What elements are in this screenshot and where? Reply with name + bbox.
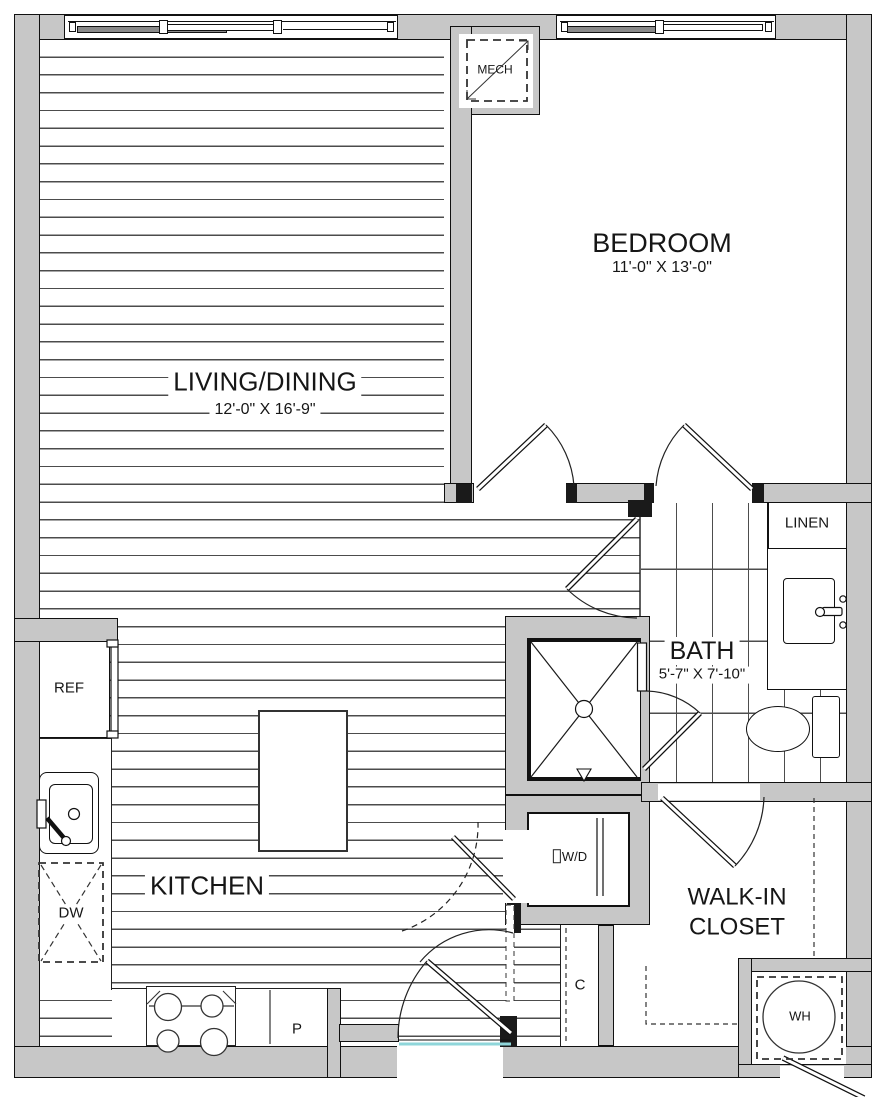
living-room-label: LIVING/DINING (168, 367, 361, 396)
mech-label: MECH (472, 63, 517, 76)
window-mullion (273, 20, 282, 34)
wall-exterior-right (846, 14, 872, 1078)
door-threshold (470, 483, 568, 503)
window-frame-line (283, 29, 393, 30)
bath-dims: 5'-7" X 7'-10" (654, 667, 750, 684)
bath-sink (783, 578, 835, 644)
floorplan-canvas: LIVING/DINING 12'-0" X 16'-9" BEDROOM 11… (0, 0, 884, 1097)
bedroom-window (556, 15, 776, 39)
walkin-door-opening (658, 784, 760, 800)
walkin-closet-door (662, 798, 735, 866)
wh-closet-wall-top (738, 958, 872, 972)
wh-closet-wall-left (738, 958, 752, 1068)
shower-pan (527, 638, 641, 781)
window-end-block (69, 22, 76, 32)
ref-alcove-wall (14, 618, 118, 642)
wall-bedroom-south-c (752, 483, 872, 503)
window-end-block (387, 22, 394, 32)
window-sash-light (166, 24, 277, 31)
kitchen-label: KITCHEN (145, 871, 269, 900)
entry-wall-spur-h (339, 1024, 399, 1042)
wall-exterior-left (14, 14, 40, 1078)
kitchen-island (258, 710, 348, 852)
bedroom-dims: 11'-0" X 13'-0" (607, 259, 717, 277)
toilet-bowl (746, 706, 810, 752)
window-mullion (159, 20, 168, 34)
pantry-label: P (287, 1022, 307, 1039)
wd-detergent-icon (553, 849, 561, 863)
window-sash-dark (567, 26, 659, 33)
wd-door-opening (503, 830, 529, 903)
window-frame-line (68, 21, 396, 22)
coat-closet-label: C (570, 978, 591, 995)
living-room-dims: 12'-0" X 16'-9" (209, 401, 320, 419)
wall-bedroom-south-a (444, 483, 474, 503)
living-window (64, 15, 398, 39)
wh-door-opening (780, 1066, 844, 1078)
window-sash-light (661, 24, 763, 31)
wh-label: WH (784, 1010, 816, 1025)
dw-label: DW (54, 906, 89, 923)
ref-label: REF (49, 681, 89, 698)
walkin-closet-label-2: CLOSET (684, 915, 790, 942)
window-end-block (561, 22, 568, 32)
walkin-floor-lower (612, 925, 642, 1046)
linen-label: LINEN (780, 516, 834, 533)
bath-label: BATH (665, 637, 740, 665)
wall-closet-walkin (598, 925, 614, 1046)
window-end-block (765, 22, 772, 32)
entry-door-opening (397, 1046, 503, 1078)
wall-bedroom-south-b (566, 483, 654, 503)
window-frame-line (560, 21, 774, 22)
bedroom-label: BEDROOM (587, 228, 737, 258)
door-threshold (654, 483, 752, 503)
walkin-closet-label-1: WALK-IN (682, 885, 791, 912)
kitchen-sink-basin (49, 784, 93, 844)
stove (146, 986, 236, 1046)
wd-label-text: W/D (562, 849, 587, 864)
window-mullion (655, 20, 664, 34)
wd-label: W/D (551, 849, 589, 865)
toilet-tank (812, 696, 840, 758)
